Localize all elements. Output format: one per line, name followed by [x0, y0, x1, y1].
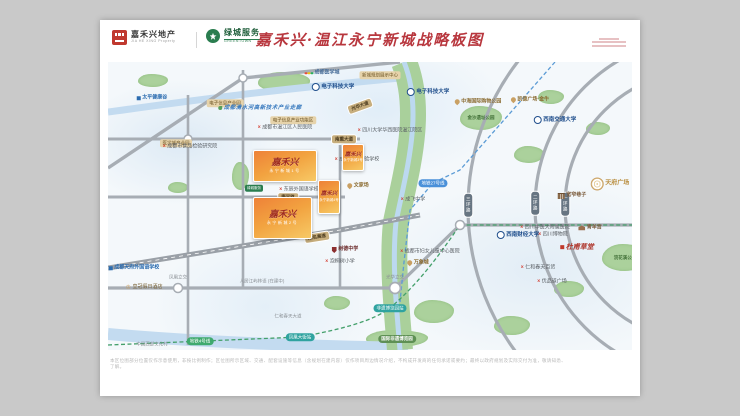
disclaimer-text: 本区位图部分位置仅作示意使用，非按比例制作；区位图所示区域、交通、配套设施等信息… [110, 358, 570, 370]
red-poi: ×成都七中实验学校 [335, 157, 379, 163]
pin-label: 中海国际购物公园 [461, 99, 501, 105]
univ-label: 电子科技大学 [416, 89, 449, 95]
gray-poi: 凤凰立交 [169, 276, 187, 281]
ring-road-1 [565, 71, 632, 341]
park-area [414, 300, 454, 323]
red-label: 成都市食品检验研究院 [167, 144, 217, 150]
park-area [366, 330, 428, 347]
gray-poi: 人居江屿林语 (在建中) [240, 280, 285, 285]
cross-marker-icon: × [520, 226, 523, 231]
gray-poi: 中国西部文化村 [136, 343, 168, 348]
redcall-poi: 杜甫草堂 [560, 243, 594, 251]
ribbon-label: 新城规划展示中心 [360, 71, 401, 79]
red-label: 成都市妇女儿童中心医院 [405, 249, 460, 255]
mpill-label: 地铁27号线 [418, 179, 447, 187]
ribbon-label: 电子信息产业园 [207, 99, 244, 107]
mpill-label: 地铁4号线 [187, 337, 214, 345]
red-label: 四川博物院 [543, 232, 568, 238]
project-name: 嘉禾兴 [269, 211, 296, 220]
corridor-poi: 成都清水河高新技术产业走廊 [218, 105, 302, 111]
school-marker-icon [137, 96, 141, 100]
strategic-map: 金沙遗址公园浣花溪公园国际非遗博览园 嘉禾兴永宁新城1号嘉禾兴永宁新城2号嘉禾兴… [108, 62, 632, 350]
jiahexing-brand-sub: JIA HE XING Property [131, 40, 176, 44]
tf-poi: 天府广场 [591, 178, 630, 191]
ring-road-2 [535, 62, 632, 350]
park-area [168, 182, 188, 193]
interchange-fenghuang [174, 284, 183, 293]
gate-label: 宽窄巷子 [566, 193, 586, 199]
univ-poi: 西南财经大学 [497, 231, 540, 239]
university-badge-icon [534, 116, 542, 124]
park-area [514, 146, 544, 163]
blue-label: 成都天府外国语学校 [114, 265, 159, 271]
station-label: 非遗博览园站 [374, 304, 407, 312]
red-poi: ×四川大学华西医院温江院区 [358, 128, 422, 134]
university-badge-icon [497, 231, 505, 239]
ringpill-label: 二环路 [530, 191, 540, 216]
greenway-corridor [394, 62, 413, 350]
sunbird-swirl-icon [591, 178, 604, 191]
univ-label: 西南财经大学 [506, 232, 539, 238]
cross-marker-icon: × [537, 280, 540, 285]
univ-poi: 西南交通大学 [534, 116, 577, 124]
desktop-background: { "header": { "brand1": {"name": "嘉禾兴地产"… [0, 0, 740, 416]
medcity-dots-icon [304, 72, 313, 75]
pin-poi: 文家场 [347, 183, 369, 189]
greentown-brand-sub: GREENTOWN [224, 39, 260, 44]
roadpill-label: 南熏大道 [331, 134, 357, 144]
clogo-poi: 成都医学城 [304, 70, 339, 76]
shield-poi: 树德中学 [332, 247, 359, 253]
cross-marker-icon: × [521, 266, 524, 271]
red-poi: ×成都市温江区人民医院 [258, 125, 312, 131]
project-name: 嘉禾兴 [321, 192, 338, 198]
station-label: 凤凰大街站 [286, 333, 315, 341]
greentown-logo-icon [206, 29, 220, 43]
red-label: 泡桐树小学 [330, 259, 355, 265]
gray-label: 光华立交 [386, 276, 404, 281]
university-badge-icon [312, 83, 320, 91]
roundabout-north [239, 74, 247, 82]
red-label: 成都七中实验学校 [339, 157, 379, 163]
greentown-brand-name: 绿城服务 [224, 29, 260, 38]
leaf-icon [218, 106, 222, 110]
park-area [538, 90, 564, 104]
greentown-brand: 绿城服务 GREENTOWN [206, 29, 260, 44]
crowne-poi: ♔皇冠假日酒店 [126, 285, 163, 291]
roadpill-label: 康平路 [277, 192, 299, 202]
project-name: 嘉禾兴 [271, 159, 298, 168]
blue-poi: 太平健康谷 [137, 95, 168, 101]
project-subtitle: 永宁新城1号 [269, 169, 300, 173]
park-area [494, 316, 530, 335]
red-label: 优品道广场 [542, 279, 567, 285]
red-poi: ×成都市妇女儿童中心医院 [400, 249, 459, 255]
pin-label: 文家场 [354, 183, 369, 189]
red-poi: ×泡桐树小学 [325, 259, 354, 265]
ringpill-label: 一环路 [560, 192, 570, 217]
cross-marker-icon: × [258, 126, 261, 131]
crowne-label: 皇冠假日酒店 [132, 285, 162, 291]
interchange-guanghua [390, 283, 401, 294]
park-label: 国际非遗博览园 [378, 335, 416, 343]
cross-marker-icon: × [401, 198, 404, 203]
gray-label: 中国西部文化村 [136, 343, 168, 348]
red-poi: ×东辰外国语学校 [279, 187, 318, 193]
partner-logo [592, 36, 626, 48]
park-area [586, 122, 610, 135]
gray-poi: 光华立交 [386, 276, 404, 281]
pin-label: 万象城 [414, 260, 429, 266]
location-pin-icon [454, 98, 461, 105]
poster-header: 嘉禾兴地产 JIA HE XING Property 绿城服务 GREENTOW… [100, 20, 640, 62]
location-pin-icon [346, 182, 353, 189]
corridor-label: 成都清水河高新技术产业走廊 [224, 105, 302, 111]
temple-poi: 青羊宫 [578, 225, 602, 231]
school-shield-icon [332, 247, 337, 253]
university-badge-icon [407, 88, 415, 96]
project-subtitle: 永宁新城2号 [267, 221, 298, 225]
gbadge-label: 绿城服务 [245, 185, 263, 192]
river-qingshuihe [108, 78, 400, 112]
cross-marker-icon: × [335, 158, 338, 163]
redcall-label: 杜甫草堂 [566, 243, 594, 251]
red-poi: ×仁和春天百货 [521, 265, 555, 271]
park-area [324, 296, 350, 310]
metro-line-27 [400, 62, 555, 302]
red-poi: ×成都市食品检验研究院 [163, 144, 217, 150]
project-box: 嘉禾兴永宁新城3号 [342, 144, 364, 171]
jiahexing-brand: 嘉禾兴地产 JIA HE XING Property [112, 30, 176, 45]
map-poster: 嘉禾兴地产 JIA HE XING Property 绿城服务 GREENTOW… [100, 20, 640, 396]
tf-label: 天府广场 [605, 181, 629, 188]
road-south-arterial [108, 225, 632, 288]
red-poi: ×成飞中学 [401, 197, 425, 203]
park-label: 浣花溪公园 [614, 255, 632, 261]
red-poi: ×四川中医大附属医院 [520, 225, 569, 231]
project-name: 嘉禾兴 [345, 153, 362, 159]
river-south [108, 334, 408, 348]
header-divider [196, 32, 197, 48]
park-area [232, 162, 249, 190]
park-area [460, 106, 502, 130]
cross-marker-icon: × [538, 233, 541, 238]
gray-label: 人居江屿林语 (在建中) [240, 280, 285, 285]
red-label: 成飞中学 [405, 197, 425, 203]
park-area [138, 74, 168, 87]
red-label: 成都市温江区人民医院 [262, 125, 312, 131]
red-label: 东辰外国语学校 [284, 187, 319, 193]
roundabout-east [456, 221, 465, 230]
gray-poi: 仁和春天大道 [275, 315, 302, 320]
univ-poi: 电子科技大学 [312, 83, 355, 91]
cross-marker-icon: × [400, 250, 403, 255]
univ-poi: 电子科技大学 [407, 88, 450, 96]
location-pin-icon [510, 96, 517, 103]
cross-marker-icon: × [358, 129, 361, 134]
roadpill-label: 光华大道 [346, 97, 374, 115]
pin-poi: 凯德广场·金牛 [511, 97, 549, 103]
project-box: 嘉禾兴永宁新城4号 [318, 180, 340, 214]
gate-icon [558, 193, 565, 199]
blue-label: 太平健康谷 [142, 95, 167, 101]
gray-label: 凤凰立交 [169, 276, 187, 281]
red-label: 四川大学华西医院温江院区 [362, 128, 422, 134]
temple-icon [578, 226, 585, 231]
cross-marker-icon: × [163, 145, 166, 150]
temple-label: 青羊宫 [587, 225, 602, 231]
ringpill-label: 三环路 [463, 193, 473, 218]
shield-label: 树德中学 [338, 247, 358, 253]
univ-label: 西南交通大学 [543, 117, 576, 123]
location-pin-icon [406, 259, 413, 266]
red-label: 四川中医大附属医院 [525, 225, 570, 231]
expressway-chengming [108, 215, 420, 268]
park-area [554, 281, 584, 297]
jiahexing-logo-icon [112, 30, 127, 45]
seal-icon [560, 245, 564, 249]
ribbon-label: 医学城产业园 [160, 139, 192, 147]
cross-marker-icon: × [325, 260, 328, 265]
clogo-label: 成都医学城 [314, 70, 339, 76]
metro-line-4 [108, 225, 632, 345]
park-area [258, 72, 310, 92]
roundabout-west [184, 135, 192, 143]
gate-poi: 宽窄巷子 [558, 193, 587, 199]
red-poi: ×优品道广场 [537, 279, 566, 285]
univ-label: 电子科技大学 [321, 84, 354, 90]
roads-rivers-layer [108, 62, 632, 350]
red-poi: ×四川博物院 [538, 232, 567, 238]
poster-title: 嘉禾兴·温江永宁新城战略板图 [256, 29, 484, 50]
project-subtitle: 永宁新城4号 [319, 199, 338, 203]
river-jiananhe [394, 62, 413, 350]
roadpill-label: 成名高速 [303, 230, 330, 243]
cross-marker-icon: × [279, 188, 282, 193]
project-subtitle: 永宁新城3号 [343, 159, 362, 163]
park-label: 金沙遗址公园 [468, 115, 495, 121]
pin-label: 凯德广场·金牛 [517, 97, 549, 103]
ribbon-label: 电子信息产业功能区 [270, 116, 316, 124]
road-diagonal-guanghua [108, 62, 400, 168]
school-marker-icon [109, 266, 113, 270]
project-box: 嘉禾兴永宁新城2号 [253, 197, 312, 239]
project-box: 嘉禾兴永宁新城1号 [253, 150, 317, 182]
pin-poi: 中海国际购物公园 [455, 99, 502, 105]
blue-poi: 成都天府外国语学校 [109, 265, 160, 271]
crown-icon: ♔ [126, 285, 131, 291]
red-label: 仁和春天百货 [525, 265, 555, 271]
park-area [602, 244, 632, 271]
expressway-centerline [108, 215, 420, 268]
gray-label: 仁和春天大道 [275, 315, 302, 320]
ring-road-3 [468, 62, 632, 350]
pin-poi: 万象城 [407, 260, 429, 266]
